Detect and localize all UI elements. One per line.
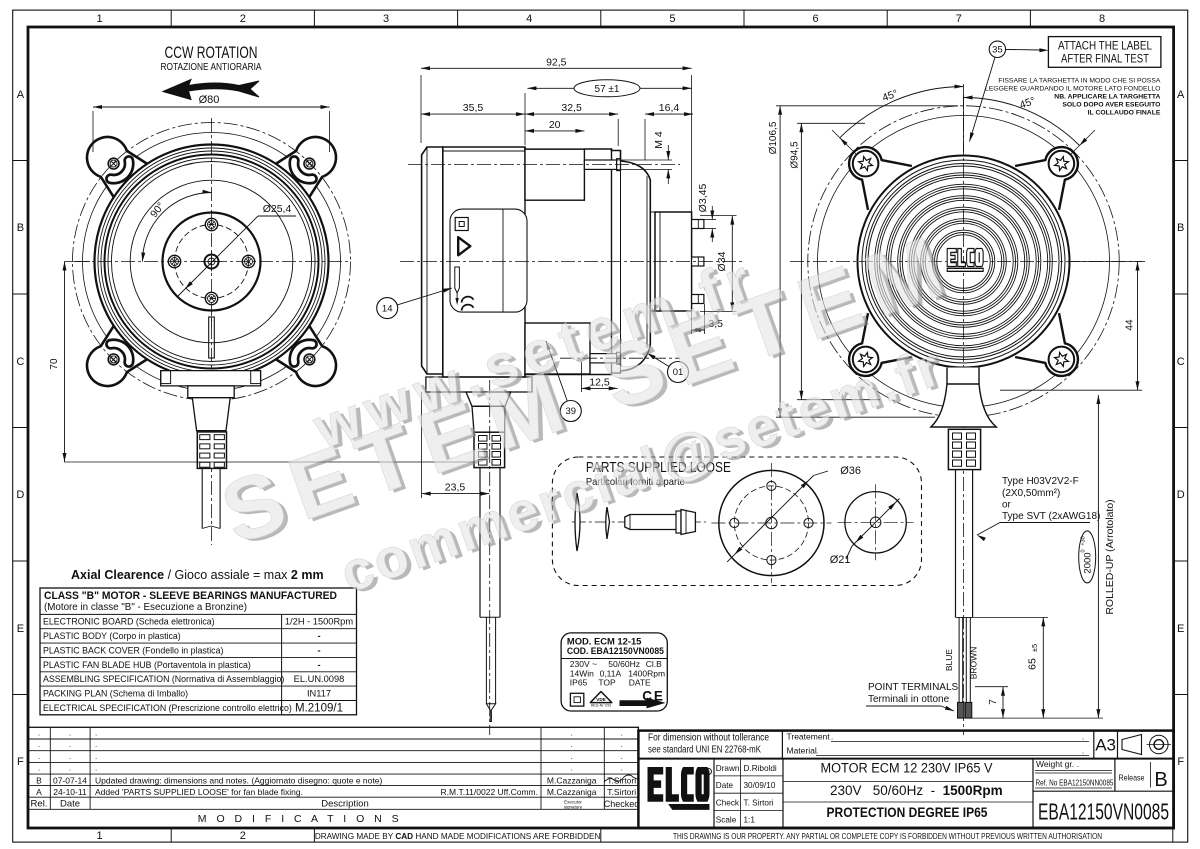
svg-text:14: 14 (382, 303, 393, 314)
svg-text:7: 7 (988, 699, 999, 705)
svg-text:Checked: Checked (604, 799, 640, 809)
svg-text:MOTOR ECM 12 230V IP65 V: MOTOR ECM 12 230V IP65 V (821, 761, 993, 776)
svg-text:T. Sirtori: T. Sirtori (744, 798, 774, 807)
svg-text:.: . (69, 729, 71, 738)
svg-text:COD. EBA12150VN0085: COD. EBA12150VN0085 (567, 645, 664, 656)
svg-text:A: A (36, 787, 42, 797)
svg-text:.: . (38, 740, 40, 749)
svg-text:E: E (17, 623, 24, 635)
svg-text:F: F (17, 756, 24, 768)
svg-text:Weight gr.: Weight gr. (1036, 759, 1074, 769)
svg-text:6: 6 (813, 13, 819, 25)
svg-text:70: 70 (49, 358, 60, 370)
svg-text:T.Sirtori: T.Sirtori (607, 775, 636, 785)
svg-text:Type SVT (2xAWG18): Type SVT (2xAWG18) (1002, 511, 1100, 522)
svg-text:FISSARE LA TARGHETTA IN MODO C: FISSARE LA TARGHETTA IN MODO CHE SI POSS… (998, 77, 1160, 84)
svg-text:(2X0,50mm²): (2X0,50mm²) (1002, 488, 1060, 499)
svg-text:230V 50/60Hz - 1500Rpm: 230V 50/60Hz - 1500Rpm (830, 783, 1003, 798)
svg-text:.: . (69, 740, 71, 749)
svg-text:4: 4 (526, 13, 532, 25)
svg-text:EBA12150VN0085: EBA12150VN0085 (1038, 799, 1169, 825)
svg-text:16,4: 16,4 (659, 102, 680, 114)
svg-text:BROWN: BROWN (969, 647, 979, 680)
svg-text:AFTER FINAL TEST: AFTER FINAL TEST (1061, 52, 1150, 66)
svg-text:Date: Date (716, 781, 734, 790)
svg-text:PACKING PLAN (Schema di Imbal: PACKING PLAN (Schema di Imballo) (43, 689, 188, 699)
svg-text:ELECTRONIC BOARD (Scheda elet: ELECTRONIC BOARD (Scheda elettronica) (43, 617, 215, 627)
svg-text:A: A (17, 89, 25, 101)
svg-text:B: B (1154, 769, 1167, 791)
svg-text:IL COLLAUDO FINALE: IL COLLAUDO FINALE (1088, 109, 1161, 116)
svg-text:M.2109/1: M.2109/1 (295, 702, 343, 714)
svg-text:0: 0 (1081, 549, 1087, 552)
svg-text:REG-Nr C93: REG-Nr C93 (591, 703, 611, 707)
svg-text:For dimension without tolleran: For dimension without tollerance (648, 733, 769, 744)
svg-text:8: 8 (1099, 13, 1105, 25)
svg-text:VDE: VDE (596, 697, 605, 702)
svg-text:NB. APPLICARE LA TARGHETTA: NB. APPLICARE LA TARGHETTA (1054, 93, 1160, 100)
svg-text:B: B (17, 222, 24, 234)
svg-text:Ø94,5: Ø94,5 (789, 141, 800, 169)
svg-text:1/2H - 1500Rpm: 1/2H - 1500Rpm (285, 617, 353, 627)
svg-text:M 4: M 4 (653, 131, 665, 149)
svg-text:1:1: 1:1 (744, 816, 756, 825)
svg-text:D: D (16, 489, 24, 501)
svg-text:PLASTIC BODY (Corpo in plasti: PLASTIC BODY (Corpo in plastica) (43, 631, 181, 641)
svg-text:1: 1 (97, 830, 103, 842)
svg-text:Ø36: Ø36 (840, 465, 861, 477)
svg-text:LEGGERE GUARDANDO IL MOTORE LA: LEGGERE GUARDANDO IL MOTORE LATO FONDELL… (985, 85, 1160, 92)
svg-text:44: 44 (1125, 319, 1136, 331)
svg-text:Description: Description (321, 799, 369, 810)
svg-text:Rel.: Rel. (31, 799, 48, 810)
svg-text:5: 5 (669, 13, 675, 25)
svg-text:Treatement: Treatement (787, 732, 831, 742)
svg-text:50/60Hz: 50/60Hz (608, 659, 640, 669)
svg-text:Check: Check (716, 798, 740, 807)
svg-text:+30: +30 (1081, 536, 1087, 545)
svg-text:.: . (95, 729, 97, 738)
svg-text:SOLO DOPO AVER ESEGUITO: SOLO DOPO AVER ESEGUITO (1062, 101, 1160, 108)
svg-text:CLASS "B" MOTOR - SLEEVE BEA: CLASS "B" MOTOR - SLEEVE BEARINGS MANUFA… (44, 590, 337, 602)
svg-text:F: F (1177, 756, 1184, 768)
svg-text:35: 35 (992, 45, 1003, 56)
svg-text:.: . (1077, 759, 1079, 769)
svg-text:Ø25,4: Ø25,4 (263, 203, 292, 215)
svg-text:2: 2 (240, 830, 246, 842)
svg-text:.: . (621, 740, 623, 749)
svg-text:T.Sirtori: T.Sirtori (607, 787, 636, 797)
svg-text:.: . (95, 740, 97, 749)
svg-text:Cl.B: Cl.B (646, 659, 662, 669)
svg-text:B: B (1177, 222, 1184, 234)
svg-text:1: 1 (97, 13, 103, 25)
svg-text:20: 20 (549, 119, 561, 131)
svg-text:Drawn: Drawn (716, 764, 740, 773)
svg-text:see standard UNI EN 22768-mK: see standard UNI EN 22768-mK (648, 744, 761, 755)
svg-text:M.Cazzaniga: M.Cazzaniga (547, 775, 597, 785)
svg-text:(Motore in classe "B" - Esec: (Motore in classe "B" - Esecuzione a Bro… (44, 602, 247, 613)
svg-text:.: . (571, 729, 573, 738)
svg-text:2000: 2000 (1083, 552, 1094, 573)
svg-text:.: . (38, 764, 40, 773)
svg-text:Updated drawing: dimensions an: Updated drawing: dimensions and notes. (… (95, 775, 382, 785)
svg-text:BLUE: BLUE (944, 649, 954, 672)
svg-text:B: B (36, 775, 42, 785)
svg-text:ASSEMBLING SPECIFICATION (Nor: ASSEMBLING SPECIFICATION (Normativa di A… (43, 674, 284, 684)
svg-text:Material: Material (787, 746, 817, 756)
svg-text:Ø80: Ø80 (199, 94, 220, 106)
svg-text:ROLLED-UP (Arrotolato): ROLLED-UP (Arrotolato) (1104, 499, 1116, 614)
svg-text:.: . (621, 729, 623, 738)
svg-text:.: . (95, 752, 97, 761)
svg-text:Ø3,45: Ø3,45 (697, 184, 709, 213)
svg-text:.: . (69, 764, 71, 773)
svg-text:A3: A3 (1095, 736, 1116, 755)
svg-text:CE: CE (642, 689, 665, 704)
svg-text:24-10-11: 24-10-11 (53, 787, 87, 797)
svg-text:signature: signature (564, 805, 583, 810)
svg-text:ATTACH THE LABEL: ATTACH THE LABEL (1058, 39, 1152, 53)
svg-text:32,5: 32,5 (561, 102, 582, 114)
svg-text:57 ±1: 57 ±1 (595, 84, 620, 95)
svg-text:.: . (571, 764, 573, 773)
svg-text:Scale: Scale (716, 816, 737, 825)
svg-text:07-07-14: 07-07-14 (53, 775, 87, 785)
svg-text:3: 3 (383, 13, 389, 25)
svg-text:-: - (317, 660, 320, 670)
svg-text:DATE: DATE (629, 678, 651, 688)
svg-text:.: . (621, 764, 623, 773)
svg-text:M.Cazzaniga: M.Cazzaniga (547, 787, 597, 797)
svg-text:35,5: 35,5 (463, 102, 484, 114)
svg-text:TOP: TOP (598, 678, 616, 688)
svg-text:DRAWING MADE BY CAD HAND MADE: DRAWING MADE BY CAD HAND MADE MODIFICATI… (315, 832, 601, 841)
svg-text:PROTECTION DEGREE IP65: PROTECTION DEGREE IP65 (827, 804, 988, 820)
svg-text:.: . (69, 752, 71, 761)
svg-text:30/09/10: 30/09/10 (744, 781, 776, 790)
svg-text:THIS DRAWING IS OUR PROPERTY.: THIS DRAWING IS OUR PROPERTY. ANY PARTIA… (673, 832, 1102, 841)
svg-text:Ø106,5: Ø106,5 (768, 121, 779, 154)
svg-text:IP65: IP65 (570, 678, 588, 688)
svg-text:-: - (317, 645, 320, 655)
svg-text:.: . (95, 764, 97, 773)
svg-text:CCW ROTATION: CCW ROTATION (165, 43, 258, 62)
svg-text:C: C (1177, 356, 1185, 368)
svg-text:.: . (621, 752, 623, 761)
svg-text:7: 7 (956, 13, 962, 25)
svg-text:M O D I F I C A T I O N S: M O D I F I C A T I O N S (198, 813, 402, 825)
svg-text:.: . (816, 746, 818, 756)
svg-text:E: E (1177, 623, 1184, 635)
svg-text:.: . (1082, 732, 1084, 742)
svg-text:or: or (1002, 500, 1012, 511)
svg-text:.: . (571, 752, 573, 761)
svg-text:2: 2 (240, 13, 246, 25)
svg-text:65: 65 (1026, 658, 1038, 670)
svg-text:PLASTIC FAN BLADE HUB (Portav: PLASTIC FAN BLADE HUB (Portaventola in p… (43, 660, 251, 670)
svg-text:.: . (831, 732, 833, 742)
svg-text:.: . (38, 752, 40, 761)
svg-text:D.Riboldi: D.Riboldi (744, 764, 777, 773)
svg-text:Ref. No EBA12150NN0085: Ref. No EBA12150NN0085 (1036, 779, 1115, 788)
svg-text:POINT TERMINALS: POINT TERMINALS (868, 682, 959, 693)
svg-text:Added 'PARTS SUPPLIED LOOSE' f: Added 'PARTS SUPPLIED LOOSE' for fan bla… (95, 787, 303, 797)
svg-text:Release: Release (1119, 774, 1145, 783)
svg-text:PLASTIC BACK COVER (Fondello: PLASTIC BACK COVER (Fondello in plastica… (43, 645, 223, 655)
svg-text:230V ~: 230V ~ (570, 659, 597, 669)
svg-text:Type H03V2V2-F: Type H03V2V2-F (1002, 476, 1079, 487)
svg-text:ROTAZIONE ANTIORARIA: ROTAZIONE ANTIORARIA (161, 61, 262, 73)
svg-text:C: C (16, 356, 24, 368)
svg-text:IN117: IN117 (307, 689, 331, 699)
svg-text:.: . (1082, 746, 1084, 756)
svg-text:.: . (571, 740, 573, 749)
svg-text:.: . (38, 729, 40, 738)
svg-text:Date: Date (60, 799, 80, 810)
svg-text:Axial Clearence / Gioco assial: Axial Clearence / Gioco assiale = max 2 … (71, 568, 324, 582)
svg-text:±5: ±5 (1030, 644, 1039, 652)
svg-text:D: D (1177, 489, 1185, 501)
svg-text:EL.UN.0098: EL.UN.0098 (294, 674, 345, 684)
svg-text:92,5: 92,5 (546, 56, 567, 68)
svg-text:A: A (1177, 89, 1185, 101)
svg-text:R.M.T.11/0022 Uff.Comm.: R.M.T.11/0022 Uff.Comm. (441, 787, 538, 797)
svg-text:ELECTRICAL SPECIFICATION (Pre: ELECTRICAL SPECIFICATION (Prescrizione c… (43, 703, 292, 713)
svg-text:Terminali in ottone: Terminali in ottone (868, 694, 950, 705)
svg-text:-: - (317, 631, 320, 641)
